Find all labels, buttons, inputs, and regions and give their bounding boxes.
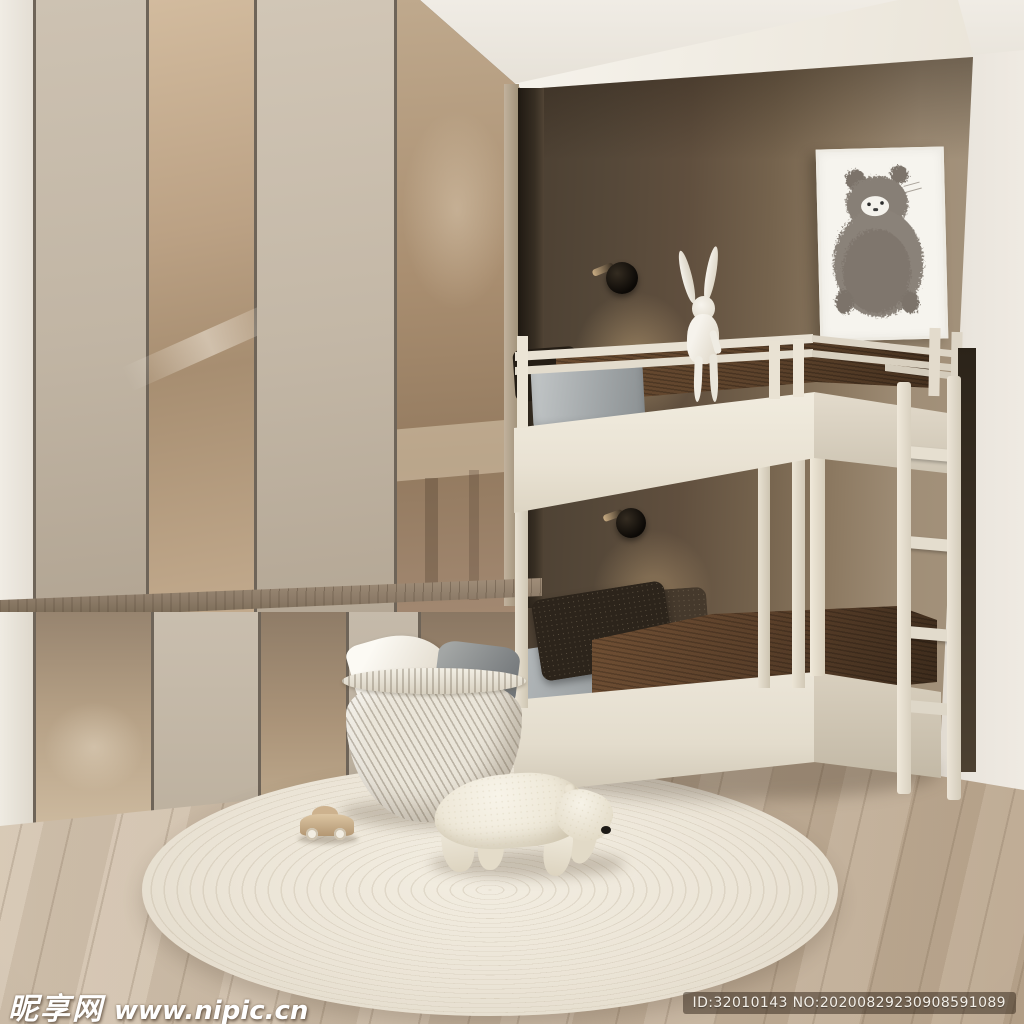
cabinet-white-side: [0, 612, 33, 837]
rail-slat-2: [769, 341, 780, 399]
wardrobe-panel-gloss-1: [149, 0, 254, 612]
ladder-rail-left: [897, 382, 911, 794]
mirror-reflection-light: [402, 110, 512, 310]
wardrobe-panel-gloss-2: [397, 0, 520, 612]
wardrobe-upper: [0, 0, 520, 612]
basket-rim: [342, 668, 526, 694]
bed-post-mid-2: [792, 452, 805, 688]
watermark-id-badge: ID:32010143 NO:20200829230908591089: [683, 992, 1016, 1014]
toy-car-wheel-rear: [334, 828, 346, 840]
basket-rim-weave: [342, 668, 526, 694]
toy-car-wheel-front: [306, 828, 318, 840]
headboard-post-1: [928, 328, 940, 396]
mirror-reflection-ladder-1: [425, 478, 438, 600]
wardrobe-panel-matte-2: [257, 0, 394, 612]
wardrobe-panel-matte-1: [36, 0, 146, 612]
left-wall-strip: [0, 0, 33, 612]
mirror-reflection-bed-band: [397, 419, 520, 482]
polar-bear-nose: [601, 826, 611, 834]
cabinet-panel-gloss-1: [36, 612, 151, 837]
bear-artwork: [819, 150, 939, 333]
rail-slat-1: [517, 336, 528, 428]
watermark-site-url: www.nipic.cn: [114, 996, 308, 1024]
bed-post-mid-1: [758, 456, 770, 688]
sconce-lower: [616, 508, 646, 538]
rail-slat-3: [793, 339, 804, 397]
ladder-rail-right: [947, 376, 961, 800]
watermark-site-logo: 昵享网: [8, 984, 104, 1024]
rug-reflection: [44, 702, 144, 792]
mirror-reflection-ladder-2: [469, 470, 479, 600]
bedroom-render: 昵享网 www.nipic.cn ID:32010143 NO:20200829…: [0, 0, 1024, 1024]
bed-post-corner: [810, 450, 825, 676]
bear-wall-art-frame: [816, 146, 949, 341]
watermark-site: 昵享网 www.nipic.cn: [8, 984, 308, 1024]
sconce-upper: [606, 262, 638, 294]
